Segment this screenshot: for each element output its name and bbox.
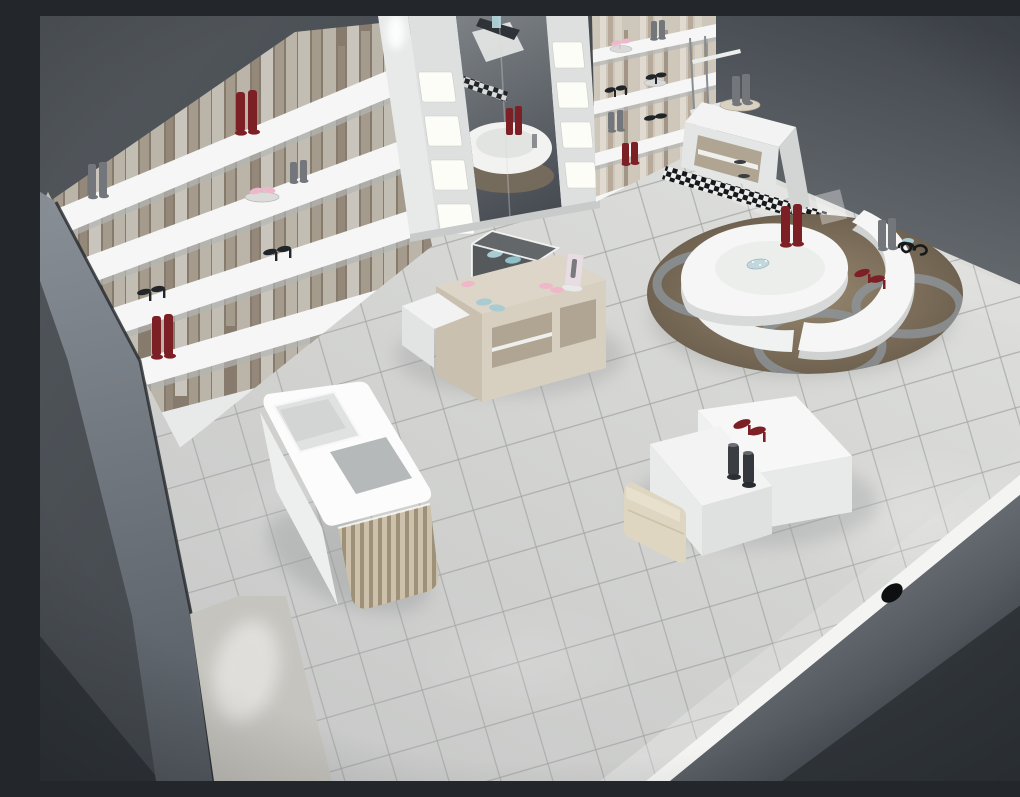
scene-canvas: [40, 16, 1020, 781]
vignette-overlay: [40, 16, 1020, 781]
store-render: [40, 16, 1020, 781]
